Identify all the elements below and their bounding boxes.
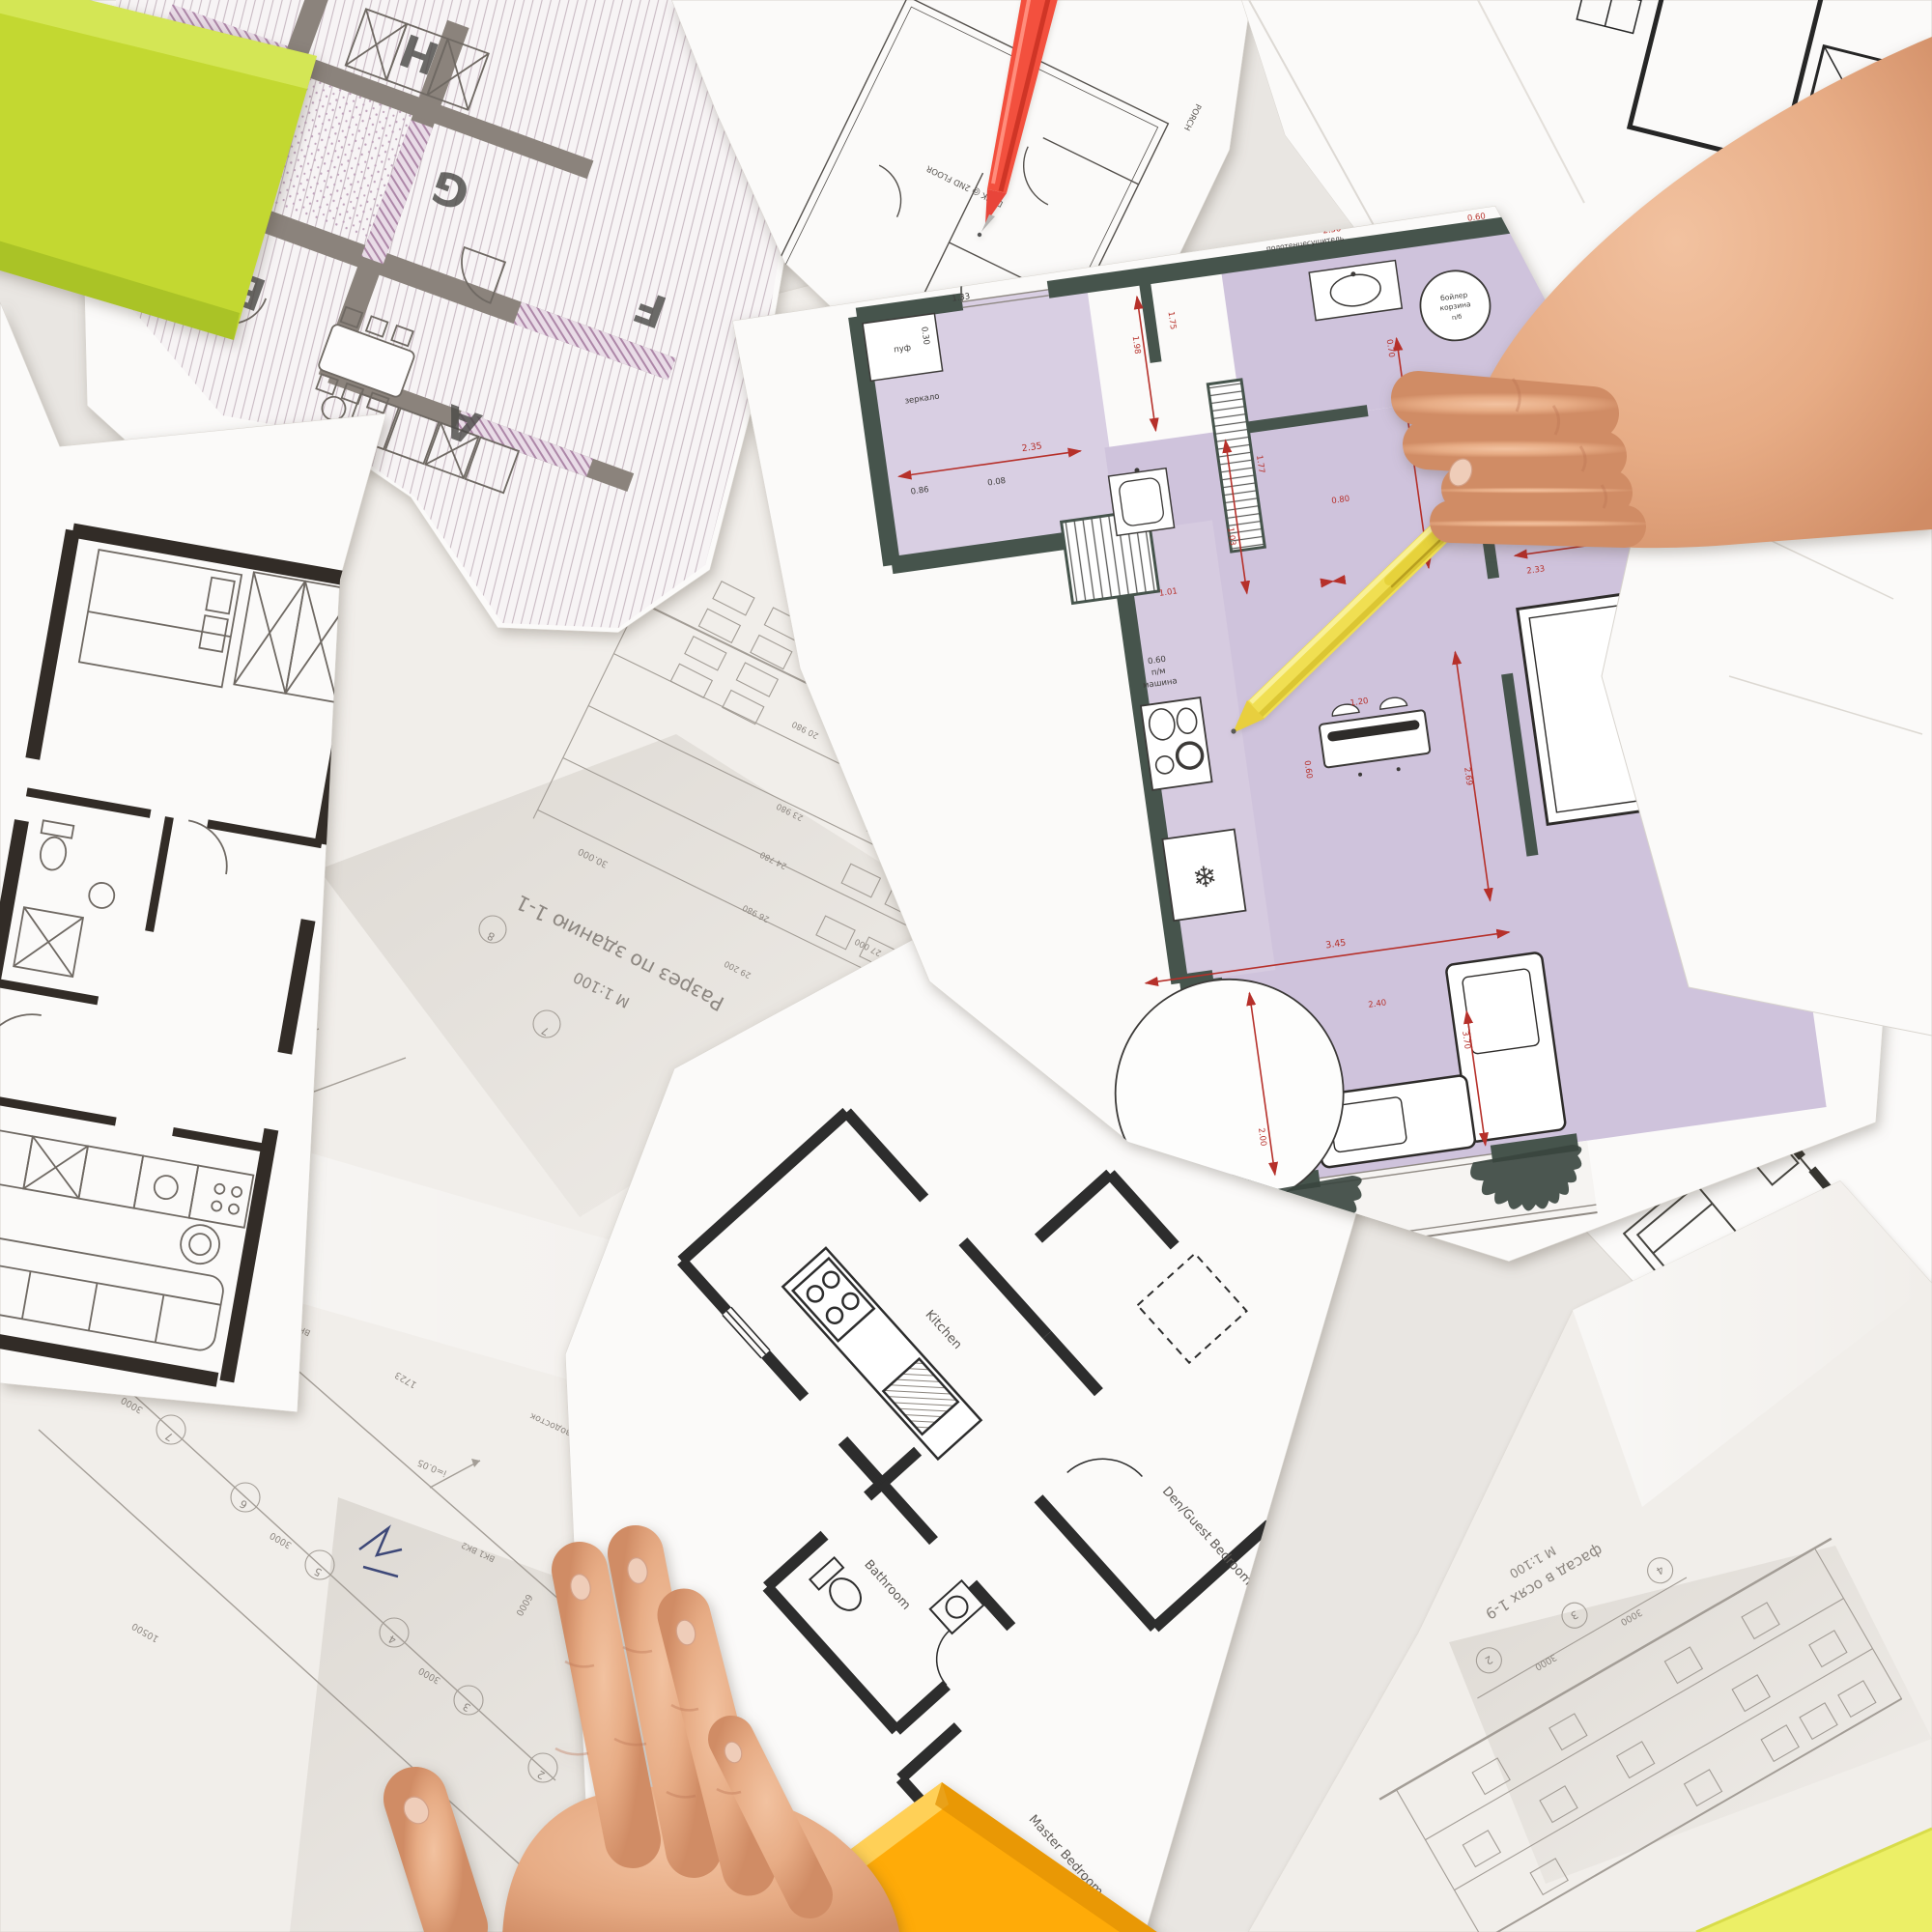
fridge: ❄: [1162, 829, 1245, 921]
kitchen-sink: [1108, 464, 1175, 535]
stove: [1141, 697, 1212, 790]
snowflake-icon: ❄: [1190, 860, 1219, 896]
label-dishwasher-1: п/м: [1151, 667, 1166, 678]
label-pb: п/б: [1451, 313, 1462, 322]
